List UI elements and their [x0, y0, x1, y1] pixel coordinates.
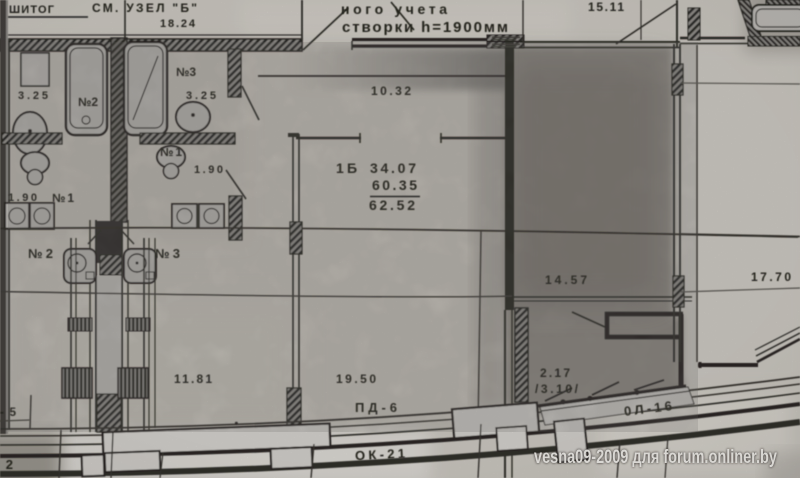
svg-text:vesna09-2009 для forum.onliner: vesna09-2009 для forum.onliner.by — [534, 447, 777, 468]
